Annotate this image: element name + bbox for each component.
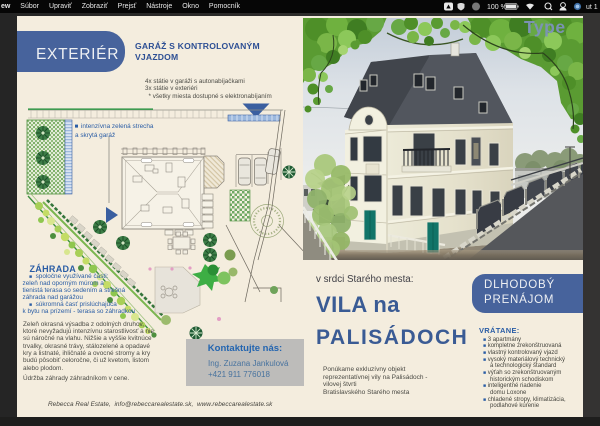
svg-text:100 %: 100 % [487, 4, 507, 11]
svg-text:a skrytá garáž: a skrytá garáž [75, 132, 115, 139]
svg-text:ut 1: ut 1 [586, 4, 598, 11]
svg-text:intenzívna zelená strecha: intenzívna zelená strecha [81, 123, 154, 130]
